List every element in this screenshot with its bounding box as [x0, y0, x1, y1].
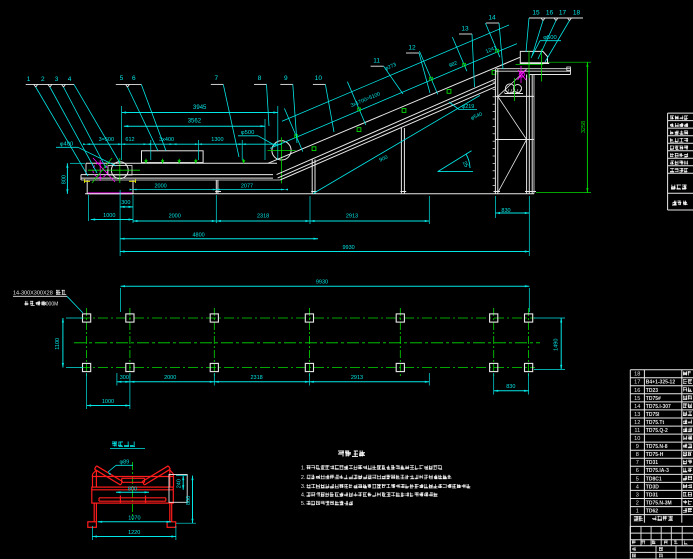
svg-text:φ89: φ89 [120, 460, 130, 466]
svg-text:830: 830 [501, 208, 510, 214]
svg-text:φ400: φ400 [60, 142, 73, 148]
svg-text:3: 3 [636, 492, 639, 498]
svg-text:2318: 2318 [257, 214, 269, 220]
svg-text:TD75.Q-2: TD75.Q-2 [646, 428, 668, 434]
svg-text:8: 8 [636, 452, 639, 458]
svg-text:3000M: 3000M [43, 302, 58, 308]
svg-text:13: 13 [634, 412, 640, 418]
svg-text:1: 1 [27, 76, 31, 83]
svg-text:10: 10 [315, 75, 323, 82]
svg-text:TD62: TD62 [646, 509, 658, 515]
svg-text:2: 2 [636, 500, 639, 506]
svg-text:9930: 9930 [342, 245, 354, 251]
svg-text:2000: 2000 [154, 183, 166, 189]
svg-text:14: 14 [634, 404, 640, 410]
svg-text:1100: 1100 [55, 338, 61, 350]
svg-text:3: 3 [55, 76, 59, 83]
svg-text:3562: 3562 [188, 119, 202, 125]
svg-text:3.: 3. [301, 484, 306, 490]
svg-text:18: 18 [573, 9, 581, 16]
svg-text:2: 2 [41, 76, 45, 83]
svg-text:16: 16 [634, 388, 640, 394]
svg-text:4: 4 [68, 76, 72, 83]
svg-text:1: 1 [636, 509, 639, 515]
svg-text:14-300X300X28: 14-300X300X28 [13, 291, 53, 297]
svg-text:5.: 5. [301, 501, 306, 507]
svg-text:6: 6 [132, 75, 136, 82]
svg-text:TD23: TD23 [646, 388, 658, 394]
svg-text:300: 300 [120, 375, 129, 381]
svg-text:16: 16 [546, 9, 554, 16]
svg-text:5: 5 [636, 476, 639, 482]
svg-text:TD8C1: TD8C1 [646, 476, 662, 482]
svg-text:1000: 1000 [103, 213, 115, 219]
svg-text:4800: 4800 [192, 233, 204, 239]
svg-text:2913: 2913 [346, 214, 358, 220]
svg-text:9930: 9930 [316, 280, 328, 286]
svg-text:612: 612 [125, 137, 134, 143]
svg-text:800: 800 [128, 487, 137, 493]
svg-text:8: 8 [258, 75, 262, 82]
svg-text:TD75.N-3M: TD75.N-3M [646, 500, 672, 506]
svg-text:5: 5 [120, 75, 124, 82]
svg-text:11: 11 [634, 428, 640, 434]
svg-text:3945: 3945 [193, 105, 207, 111]
svg-text:TD75#: TD75# [646, 396, 661, 402]
svg-text:TD75.IA-3: TD75.IA-3 [646, 468, 669, 474]
svg-text:4: 4 [636, 484, 639, 490]
svg-text:7: 7 [214, 75, 218, 82]
svg-text:TD75-H: TD75-H [646, 452, 664, 458]
svg-text:1000: 1000 [102, 399, 114, 405]
svg-text:240: 240 [177, 479, 183, 488]
svg-text:17: 17 [634, 380, 640, 386]
svg-text:800: 800 [61, 175, 67, 184]
svg-text:TD75.N-8: TD75.N-8 [646, 444, 668, 450]
svg-text:1220: 1220 [128, 530, 140, 536]
svg-text:15: 15 [532, 9, 540, 16]
svg-text:9: 9 [284, 75, 288, 82]
svg-text:11: 11 [373, 58, 380, 65]
svg-text:TD75.Tt: TD75.Tt [646, 420, 665, 426]
svg-text:6: 6 [636, 468, 639, 474]
svg-text:TD31: TD31 [646, 460, 658, 466]
svg-text:TD31: TD31 [646, 492, 658, 498]
svg-text:1070: 1070 [128, 516, 140, 522]
svg-text:2000: 2000 [169, 214, 181, 220]
svg-text:10: 10 [634, 436, 640, 442]
svg-text:2318: 2318 [250, 375, 262, 381]
svg-text:1300: 1300 [211, 137, 223, 143]
svg-text:φ500: φ500 [543, 35, 556, 41]
svg-text:B4+1-325-12: B4+1-325-12 [646, 380, 676, 386]
svg-text:300: 300 [121, 200, 130, 206]
svg-text:830: 830 [506, 384, 515, 390]
svg-text:3x400: 3x400 [159, 137, 174, 143]
svg-text:7: 7 [636, 460, 639, 466]
svg-text:15: 15 [634, 396, 640, 402]
svg-text:9: 9 [636, 444, 639, 450]
svg-text:17: 17 [559, 9, 567, 16]
svg-text:12: 12 [634, 420, 640, 426]
svg-text:3258: 3258 [581, 121, 587, 133]
svg-text:TD75I: TD75I [646, 412, 660, 418]
svg-text:14: 14 [488, 14, 496, 21]
svg-text:12: 12 [408, 44, 416, 51]
svg-text:TD75.I-307: TD75.I-307 [646, 404, 671, 410]
svg-text:4.: 4. [301, 493, 306, 499]
svg-text:1.: 1. [301, 465, 306, 471]
svg-text:2.: 2. [301, 475, 306, 481]
svg-text:2913: 2913 [351, 375, 363, 381]
svg-text:φ500: φ500 [241, 130, 254, 136]
svg-text:800: 800 [186, 496, 192, 505]
svg-text:3=500: 3=500 [99, 137, 114, 143]
svg-text:2077: 2077 [241, 183, 253, 189]
svg-text:13: 13 [461, 25, 469, 32]
svg-text:18: 18 [634, 372, 640, 378]
svg-text:2000: 2000 [164, 375, 176, 381]
svg-text:1490: 1490 [554, 339, 560, 351]
svg-text:TD3D: TD3D [646, 484, 659, 490]
